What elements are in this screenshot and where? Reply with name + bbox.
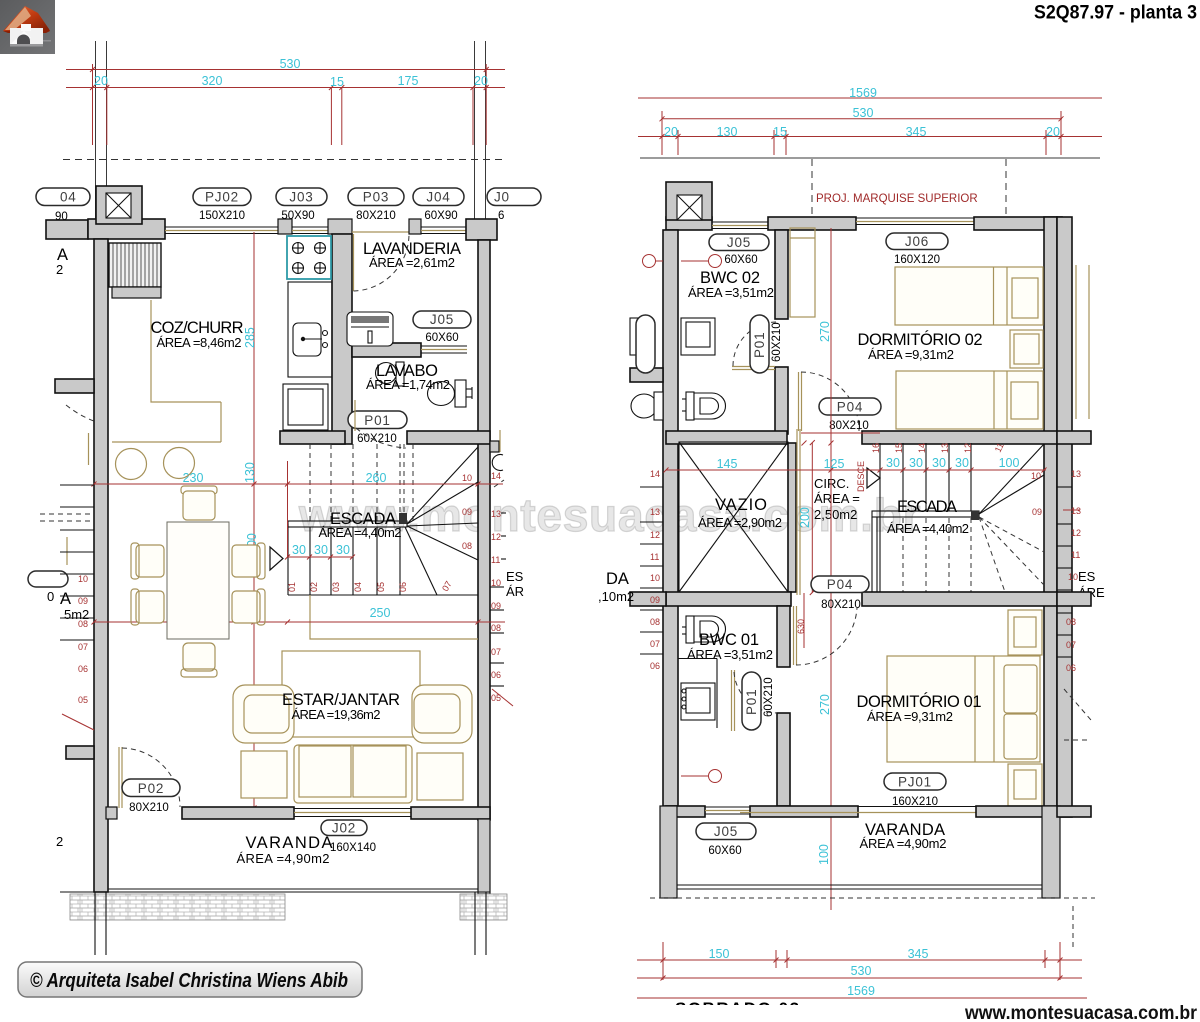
svg-text:200: 200: [798, 507, 812, 528]
svg-text:07: 07: [78, 642, 88, 652]
svg-text:14: 14: [491, 471, 501, 481]
svg-text:ÁREA =4,90m2: ÁREA =4,90m2: [860, 836, 947, 851]
svg-text:06: 06: [1066, 663, 1076, 673]
svg-text:630: 630: [796, 619, 806, 634]
svg-text:530: 530: [851, 964, 872, 978]
svg-text:06: 06: [78, 664, 88, 674]
svg-text:PROJ. MARQUISE SUPERIOR: PROJ. MARQUISE SUPERIOR: [816, 193, 978, 205]
svg-text:345: 345: [908, 947, 929, 961]
svg-text:145: 145: [717, 457, 738, 471]
svg-text:20: 20: [474, 74, 488, 88]
svg-text:ES: ES: [506, 569, 524, 584]
svg-text:ÁREA =: ÁREA =: [814, 491, 860, 506]
svg-text:16: 16: [871, 443, 881, 453]
svg-text:08: 08: [491, 623, 501, 633]
svg-text:ÁREA =3,51m2: ÁREA =3,51m2: [688, 285, 774, 300]
svg-text:1569: 1569: [849, 86, 877, 100]
svg-text:13: 13: [940, 443, 950, 453]
svg-text:10: 10: [1031, 471, 1041, 481]
svg-text:CIRC.: CIRC.: [814, 476, 849, 491]
svg-text:10: 10: [1068, 572, 1078, 582]
svg-text:02: 02: [309, 582, 319, 592]
svg-text:08: 08: [78, 619, 88, 629]
svg-text:30: 30: [932, 456, 946, 470]
svg-text:13: 13: [650, 507, 660, 517]
svg-text:03: 03: [331, 582, 341, 592]
svg-text:270: 270: [818, 321, 832, 342]
svg-text:30: 30: [314, 543, 328, 557]
svg-text:PJ01: PJ01: [898, 775, 932, 790]
svg-text:100: 100: [817, 844, 831, 865]
svg-text:ÁREA =19,36m2: ÁREA =19,36m2: [292, 707, 381, 722]
svg-text:30: 30: [909, 456, 923, 470]
svg-text:P02: P02: [138, 781, 164, 796]
svg-text:J04: J04: [426, 190, 450, 205]
svg-text:6: 6: [498, 210, 504, 222]
svg-text:P01: P01: [744, 689, 759, 715]
svg-text:13: 13: [1071, 469, 1081, 479]
svg-text:P04: P04: [837, 400, 863, 415]
svg-text:15: 15: [773, 125, 787, 139]
svg-text:230: 230: [183, 471, 204, 485]
svg-text:© Arquiteta Isabel Christina W: © Arquiteta Isabel Christina Wiens Abib: [30, 970, 348, 992]
svg-text:A: A: [60, 590, 71, 608]
svg-text:80X210: 80X210: [821, 599, 861, 611]
svg-text:15: 15: [330, 75, 344, 89]
svg-text:160X210: 160X210: [892, 796, 938, 808]
svg-text:06: 06: [650, 661, 660, 671]
svg-text:06: 06: [491, 670, 501, 680]
svg-text:250: 250: [370, 606, 391, 620]
svg-text:15: 15: [894, 443, 904, 453]
svg-text:ÁREA =1,74m2: ÁREA =1,74m2: [366, 377, 450, 392]
svg-text:11: 11: [650, 552, 659, 562]
svg-text:ÁREA =9,31m2: ÁREA =9,31m2: [867, 709, 953, 724]
svg-text:150X210: 150X210: [199, 210, 245, 222]
svg-text:80X210: 80X210: [356, 210, 396, 222]
svg-text:J06: J06: [905, 234, 929, 249]
svg-text:175: 175: [398, 74, 419, 88]
svg-text:P01: P01: [364, 413, 390, 428]
svg-text:260: 260: [366, 471, 387, 485]
svg-text:160X120: 160X120: [894, 254, 940, 266]
svg-text:10: 10: [650, 573, 660, 583]
svg-text:20: 20: [664, 125, 678, 139]
svg-text:285: 285: [243, 327, 257, 348]
svg-text:2: 2: [56, 262, 63, 277]
svg-text:160X140: 160X140: [330, 842, 376, 854]
svg-text:S2Q87.97 - planta 3: S2Q87.97 - planta 3: [1034, 3, 1197, 24]
svg-text:J02: J02: [332, 821, 356, 836]
svg-text:VAZIO: VAZIO: [715, 496, 767, 514]
svg-text:10: 10: [78, 574, 88, 584]
svg-text:DESCE: DESCE: [856, 461, 866, 492]
svg-text:ÁREA =8,46m2: ÁREA =8,46m2: [157, 335, 242, 350]
svg-text:150: 150: [709, 947, 730, 961]
svg-text:ÁR: ÁR: [506, 584, 524, 599]
svg-text:60X60: 60X60: [425, 332, 458, 344]
svg-text:DA: DA: [606, 570, 629, 588]
svg-text:J05: J05: [430, 312, 454, 327]
svg-text:30: 30: [886, 456, 900, 470]
svg-text:09: 09: [462, 507, 472, 517]
svg-text:07: 07: [650, 639, 660, 649]
svg-text:04: 04: [60, 190, 77, 205]
svg-text:08: 08: [650, 617, 660, 627]
svg-text:60X210: 60X210: [771, 322, 783, 362]
svg-text:ÁREA =9,31m2: ÁREA =9,31m2: [868, 347, 954, 362]
svg-text:30: 30: [336, 543, 350, 557]
svg-text:P03: P03: [363, 190, 389, 205]
svg-text:09: 09: [78, 596, 88, 606]
svg-text:30: 30: [292, 543, 306, 557]
svg-text:J03: J03: [289, 190, 313, 205]
svg-text:04: 04: [353, 582, 363, 592]
svg-text:ÁREA =4,40m2: ÁREA =4,40m2: [319, 525, 402, 540]
svg-text:530: 530: [280, 57, 301, 71]
svg-text:05: 05: [376, 582, 386, 592]
svg-text:60X60: 60X60: [708, 845, 741, 857]
svg-text:13: 13: [491, 509, 501, 519]
svg-text:ESCADA: ESCADA: [897, 498, 957, 516]
svg-text:12: 12: [1071, 528, 1081, 538]
svg-text:06: 06: [398, 582, 408, 592]
svg-text:J0: J0: [494, 190, 510, 205]
svg-text:2,50m2: 2,50m2: [814, 507, 857, 522]
svg-text:320: 320: [202, 74, 223, 88]
svg-text:20: 20: [1046, 125, 1060, 139]
svg-text:PJ02: PJ02: [205, 190, 239, 205]
svg-text:60X60: 60X60: [724, 254, 757, 266]
svg-text:14: 14: [917, 443, 927, 453]
svg-text:14: 14: [650, 469, 660, 479]
svg-text:12: 12: [491, 532, 501, 542]
svg-text:12: 12: [963, 443, 973, 453]
svg-text:ÁREA =4,90m2: ÁREA =4,90m2: [237, 851, 330, 866]
svg-text:www.montesuacasa.com.br: www.montesuacasa.com.br: [964, 1003, 1197, 1022]
svg-text:ÁREA =4,40m2: ÁREA =4,40m2: [887, 521, 969, 536]
svg-text:J05: J05: [727, 235, 751, 250]
svg-text:07: 07: [491, 647, 501, 657]
svg-text:530: 530: [853, 106, 874, 120]
svg-text:P04: P04: [827, 577, 853, 592]
svg-text:VARANDA: VARANDA: [246, 834, 333, 852]
svg-text:ÁREA =2,61m2: ÁREA =2,61m2: [369, 255, 455, 270]
svg-text:09: 09: [650, 595, 660, 605]
svg-text:2: 2: [56, 834, 63, 849]
svg-text:60X210: 60X210: [763, 677, 775, 717]
svg-text:10: 10: [462, 473, 472, 483]
svg-text:08: 08: [462, 541, 472, 551]
svg-text:0: 0: [47, 589, 54, 604]
svg-text:,10m2: ,10m2: [598, 589, 634, 604]
svg-text:ÁREA =2,90m2: ÁREA =2,90m2: [698, 515, 782, 530]
svg-text:01: 01: [287, 582, 297, 592]
svg-text:1569: 1569: [847, 984, 875, 998]
svg-text:125: 125: [824, 457, 845, 471]
svg-text:12: 12: [650, 530, 660, 540]
svg-text:80X210: 80X210: [129, 802, 169, 814]
svg-text:09: 09: [1032, 507, 1042, 517]
svg-text:ES: ES: [1078, 569, 1096, 584]
svg-text:11: 11: [491, 555, 500, 565]
svg-text:130: 130: [717, 125, 738, 139]
svg-text:08: 08: [1066, 617, 1076, 627]
svg-text:60X90: 60X90: [424, 210, 457, 222]
svg-text:20: 20: [94, 74, 108, 88]
svg-text:07: 07: [1066, 640, 1076, 650]
svg-text:P01: P01: [752, 332, 767, 358]
svg-text:J05: J05: [714, 824, 738, 839]
svg-text:60X210: 60X210: [357, 433, 397, 445]
svg-text:30: 30: [955, 456, 969, 470]
svg-text:ÁREA =3,51m2: ÁREA =3,51m2: [687, 647, 773, 662]
svg-text:270: 270: [818, 694, 832, 715]
svg-text:11: 11: [1071, 550, 1080, 560]
svg-text:05: 05: [78, 695, 88, 705]
svg-text:100: 100: [999, 456, 1020, 470]
svg-text:130: 130: [243, 462, 257, 483]
svg-text:13: 13: [1071, 506, 1081, 516]
svg-text:345: 345: [906, 125, 927, 139]
